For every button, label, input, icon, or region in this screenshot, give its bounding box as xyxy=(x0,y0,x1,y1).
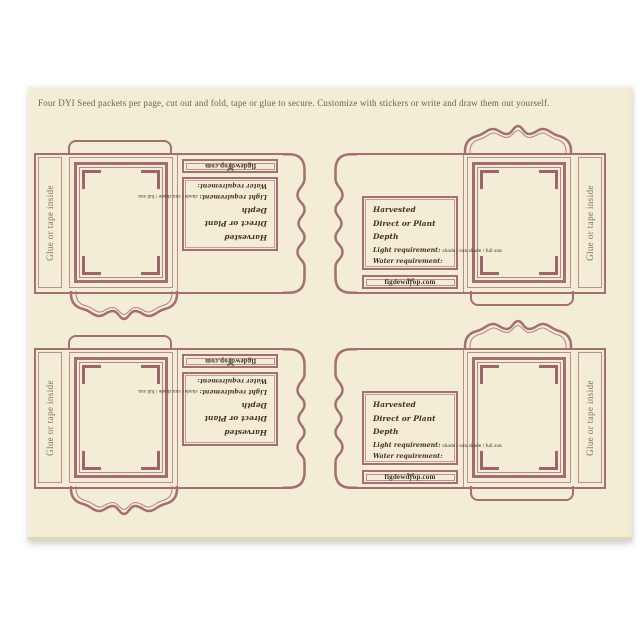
water-requirement-label: Water requirement: xyxy=(197,183,267,190)
info-fields: Harvested Direct or Plant Depth Light re… xyxy=(368,202,452,264)
info-box: Harvested Direct or Plant Depth Light re… xyxy=(362,391,458,465)
light-requirement-label: Light requirement: xyxy=(373,247,440,254)
info-box-inner: Harvested Direct or Plant Depth Light re… xyxy=(185,375,275,443)
corner-bracket-icon xyxy=(82,170,101,189)
wavy-cut-edge xyxy=(333,153,357,294)
corner-bracket-icon xyxy=(141,256,160,275)
fold-line xyxy=(177,350,178,487)
scalloped-flap xyxy=(462,122,574,154)
notepad-page: Four DYI Seed packets per page, cut out … xyxy=(28,86,632,540)
glue-flap: Glue or tape inside xyxy=(578,352,602,483)
wavy-cut-edge xyxy=(333,348,357,489)
light-options: shade / sun shade / full sun xyxy=(442,249,501,254)
fold-line xyxy=(463,155,464,292)
field-depth: Depth xyxy=(193,401,267,409)
glue-flap-label: Glue or tape inside xyxy=(45,185,55,261)
leaf-icon xyxy=(227,162,234,171)
decorative-frame xyxy=(472,162,566,283)
light-options: shade / sun shade / full sun xyxy=(138,194,197,199)
info-box: Harvested Direct or Plant Depth Light re… xyxy=(362,196,458,270)
info-box: Harvested Direct or Plant Depth Light re… xyxy=(182,372,278,446)
corner-bracket-icon xyxy=(480,170,499,189)
field-direct-or-plant: Direct or Plant xyxy=(193,415,267,423)
brand-banner-inner: figdewdrop.com xyxy=(366,279,455,286)
field-light-requirement: Light requirement:shade / sun shade / fu… xyxy=(193,193,267,201)
brand-banner: figdewdrop.com xyxy=(362,470,458,484)
brand-banner-inner: figdewdrop.com xyxy=(366,474,455,481)
corner-bracket-icon xyxy=(141,451,160,470)
seed-packet-template: Glue or tape inside figdewdrop.com xyxy=(332,122,606,308)
glue-flap-label: Glue or tape inside xyxy=(45,380,55,456)
water-requirement-label: Water requirement: xyxy=(373,258,443,265)
scalloped-flap xyxy=(68,486,180,518)
decorative-frame xyxy=(74,162,168,283)
info-fields: Harvested Direct or Plant Depth Light re… xyxy=(188,183,272,245)
front-panel xyxy=(69,157,173,288)
info-box: Harvested Direct or Plant Depth Light re… xyxy=(182,177,278,251)
brand-banner-inner: figdewdrop.com xyxy=(186,358,275,365)
front-panel xyxy=(467,352,571,483)
field-harvested: Harvested xyxy=(373,401,447,409)
corner-bracket-icon xyxy=(141,365,160,384)
scalloped-flap xyxy=(462,317,574,349)
light-options: shade / sun shade / full sun xyxy=(138,389,197,394)
decorative-frame xyxy=(74,357,168,478)
corner-bracket-icon xyxy=(539,365,558,384)
glue-flap-label: Glue or tape inside xyxy=(585,185,595,261)
field-light-requirement: Light requirement:shade / sun shade / fu… xyxy=(193,388,267,396)
leaf-icon xyxy=(407,473,414,482)
field-water-requirement: Water requirement: xyxy=(373,453,447,460)
glue-flap: Glue or tape inside xyxy=(38,352,62,483)
brand-banner: figdewdrop.com xyxy=(182,354,278,368)
field-harvested: Harvested xyxy=(193,233,267,241)
info-fields: Harvested Direct or Plant Depth Light re… xyxy=(368,397,452,459)
corner-bracket-icon xyxy=(82,256,101,275)
fold-line xyxy=(463,350,464,487)
corner-bracket-icon xyxy=(480,365,499,384)
brand-banner: figdewdrop.com xyxy=(362,275,458,289)
field-harvested: Harvested xyxy=(193,428,267,436)
instructions-text: Four DYI Seed packets per page, cut out … xyxy=(38,98,622,108)
water-requirement-label: Water requirement: xyxy=(197,378,267,385)
wavy-cut-edge xyxy=(283,348,307,489)
field-direct-or-plant: Direct or Plant xyxy=(373,415,447,423)
light-requirement-label: Light requirement: xyxy=(200,194,267,201)
info-fields: Harvested Direct or Plant Depth Light re… xyxy=(188,378,272,440)
field-direct-or-plant: Direct or Plant xyxy=(193,220,267,228)
field-depth: Depth xyxy=(193,206,267,214)
glue-flap: Glue or tape inside xyxy=(578,157,602,288)
field-water-requirement: Water requirement: xyxy=(193,378,267,385)
wavy-cut-edge xyxy=(283,153,307,294)
corner-bracket-icon xyxy=(480,256,499,275)
front-panel xyxy=(69,352,173,483)
corner-bracket-icon xyxy=(141,170,160,189)
field-light-requirement: Light requirement:shade / sun shade / fu… xyxy=(373,442,447,450)
info-box-inner: Harvested Direct or Plant Depth Light re… xyxy=(365,394,455,462)
water-requirement-label: Water requirement: xyxy=(373,453,443,460)
scalloped-flap xyxy=(68,291,180,323)
seed-packet-template: Glue or tape inside figdewdrop.com xyxy=(332,317,606,503)
field-harvested: Harvested xyxy=(373,206,447,214)
decorative-frame xyxy=(472,357,566,478)
info-box-inner: Harvested Direct or Plant Depth Light re… xyxy=(365,199,455,267)
field-depth: Depth xyxy=(373,428,447,436)
corner-bracket-icon xyxy=(539,451,558,470)
leaf-icon xyxy=(227,357,234,366)
leaf-icon xyxy=(407,278,414,287)
light-requirement-label: Light requirement: xyxy=(200,389,267,396)
corner-bracket-icon xyxy=(539,256,558,275)
brand-banner: figdewdrop.com xyxy=(182,159,278,173)
glue-flap-label: Glue or tape inside xyxy=(585,380,595,456)
field-water-requirement: Water requirement: xyxy=(193,183,267,190)
corner-bracket-icon xyxy=(539,170,558,189)
seed-packet-template: Glue or tape inside figdewdrop.com xyxy=(34,140,308,326)
corner-bracket-icon xyxy=(82,365,101,384)
seed-packet-template: Glue or tape inside figdewdrop.com xyxy=(34,335,308,521)
brand-banner-inner: figdewdrop.com xyxy=(186,163,275,170)
corner-bracket-icon xyxy=(480,451,499,470)
glue-flap: Glue or tape inside xyxy=(38,157,62,288)
fold-line xyxy=(177,155,178,292)
field-depth: Depth xyxy=(373,233,447,241)
light-requirement-label: Light requirement: xyxy=(373,442,440,449)
field-direct-or-plant: Direct or Plant xyxy=(373,220,447,228)
info-box-inner: Harvested Direct or Plant Depth Light re… xyxy=(185,180,275,248)
front-panel xyxy=(467,157,571,288)
light-options: shade / sun shade / full sun xyxy=(442,444,501,449)
corner-bracket-icon xyxy=(82,451,101,470)
product-image: Four DYI Seed packets per page, cut out … xyxy=(0,0,644,644)
field-light-requirement: Light requirement:shade / sun shade / fu… xyxy=(373,247,447,255)
field-water-requirement: Water requirement: xyxy=(373,258,447,265)
